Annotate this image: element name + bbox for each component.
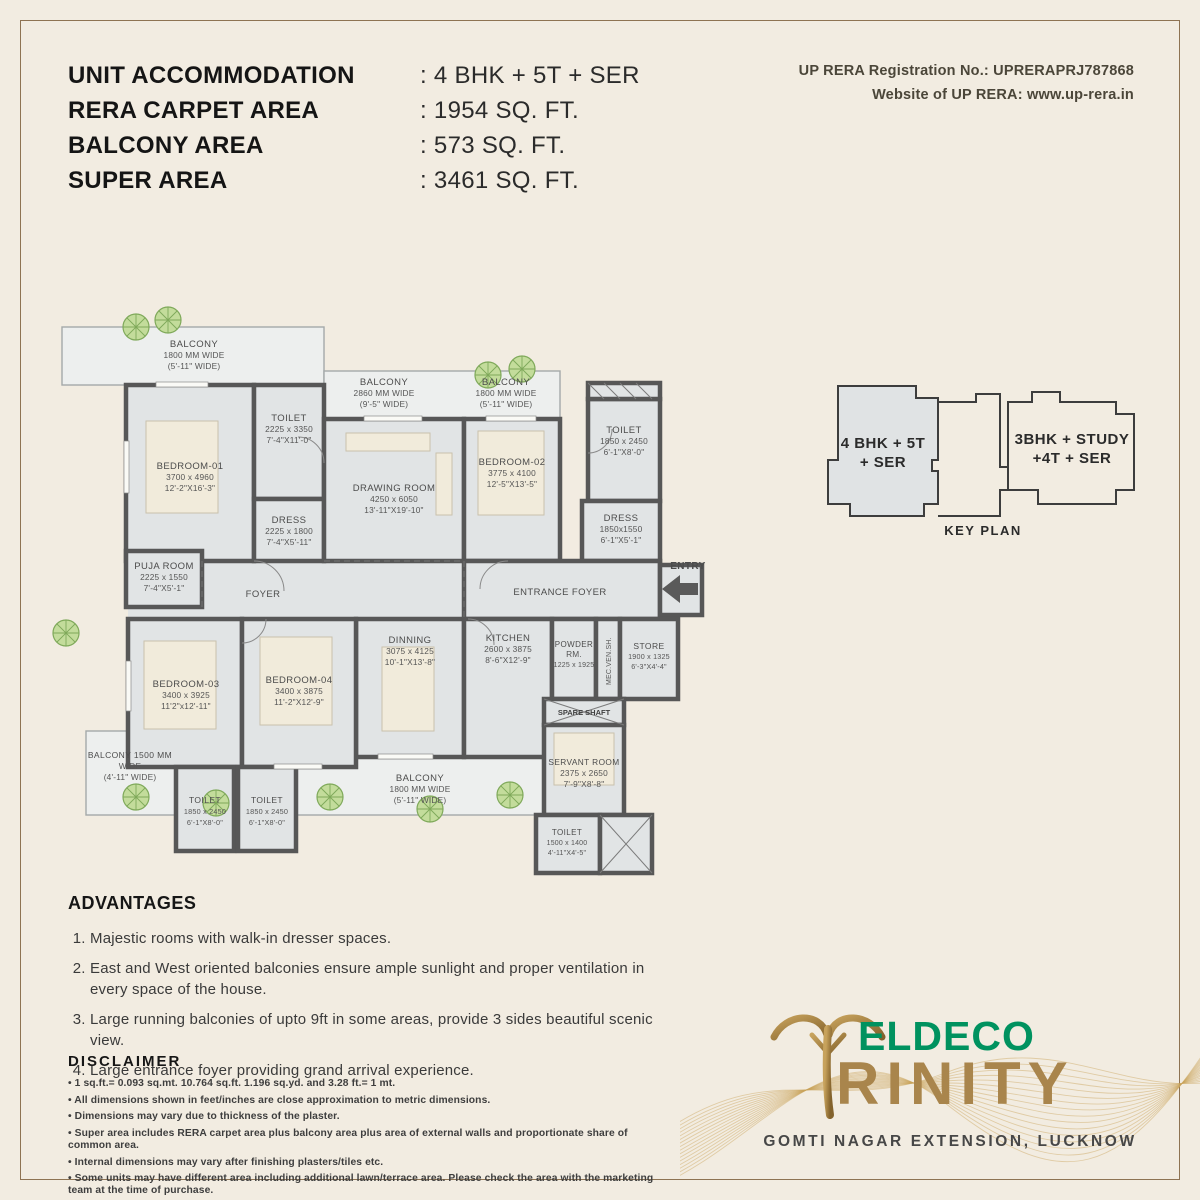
room-label: SERVANT ROOM: [548, 757, 619, 767]
tree-icon: [123, 784, 149, 810]
key-plan-caption: KEY PLAN: [944, 523, 1022, 538]
room-dim: WIDE: [119, 761, 142, 771]
room-label: PUJA ROOM: [134, 561, 194, 572]
disclaimer-item: All dimensions shown in feet/inches are …: [68, 1095, 668, 1107]
spec-value: : 573 SQ. FT.: [420, 132, 640, 160]
disclaimer-item: Dimensions may vary due to thickness of …: [68, 1111, 668, 1123]
spec-label: UNIT ACCOMMODATION: [68, 62, 420, 90]
room-label: TOILET: [251, 795, 283, 805]
room-label: DRESS: [604, 513, 639, 524]
advantage-item: East and West oriented balconies ensure …: [90, 958, 658, 1000]
room-label: KITCHEN: [486, 633, 531, 644]
room-powder: [552, 619, 596, 699]
disclaimer-item: 1 sq.ft.= 0.093 sq.mt. 10.764 sq.ft. 1.1…: [68, 1078, 668, 1090]
room-dim: 2600 x 3875: [484, 644, 532, 654]
room-dim: 2225 x 1550: [140, 572, 188, 582]
entry-label: ENTRY: [670, 561, 706, 572]
room-label: TOILET: [552, 828, 582, 837]
room-label: POWDER: [555, 640, 593, 649]
eldeco-trinity-logo: ELDECO RINITY GOMTI NAGAR EXTENSION, LUC…: [740, 995, 1180, 1175]
room-dim: 1225 x 1925: [554, 662, 595, 669]
room-dim: 3400 x 3925: [162, 690, 210, 700]
room-label: BEDROOM-02: [479, 457, 546, 468]
room-label: BALCONY: [396, 773, 444, 784]
room-label: DRAWING ROOM: [353, 483, 436, 494]
spec-value: : 4 BHK + 5T + SER: [420, 62, 640, 90]
room-label: DRESS: [272, 515, 307, 526]
room-dim: 2860 MM WIDE: [354, 388, 415, 398]
room-dim: 1500 x 1400: [547, 840, 588, 847]
room-dim: 1850 x 2450: [184, 807, 226, 816]
room-dim: 3700 x 4960: [166, 472, 214, 482]
disclaimer-item: Super area includes RERA carpet area plu…: [68, 1128, 668, 1152]
room-dim: 3775 x 4100: [488, 468, 536, 478]
room-dim: 2225 x 3350: [265, 424, 313, 434]
room-dim: (9'-5" WIDE): [360, 399, 408, 409]
room-label: BALCONY 1500 MM: [88, 750, 172, 760]
room-dim: 11'2"x12'-11": [161, 701, 211, 711]
key-plan-right-unit: [1008, 392, 1134, 504]
tree-icon: [155, 307, 181, 333]
brochure-page: UNIT ACCOMMODATION : 4 BHK + 5T + SER RE…: [0, 0, 1200, 1200]
unit-spec-table: UNIT ACCOMMODATION : 4 BHK + 5T + SER RE…: [68, 62, 640, 195]
spec-value: : 3461 SQ. FT.: [420, 167, 640, 195]
tree-icon: [53, 620, 79, 646]
room-dim: 6'-1"X8'-0": [604, 447, 645, 457]
tree-icon: [123, 314, 149, 340]
key-plan-right-label: +4T + SER: [1033, 450, 1112, 467]
floor-plan: BALCONY 1800 MM WIDE (5'-11" WIDE) BALCO…: [48, 303, 713, 888]
room-label: BALCONY: [170, 339, 218, 350]
room-dim: 6'-1"X8'-0": [249, 818, 285, 827]
room-label: SPARE SHAFT: [558, 708, 611, 717]
room-dim: RM.: [566, 649, 582, 659]
room-dim: 7'-4"X5'-1": [144, 583, 185, 593]
key-plan-core: [938, 394, 1008, 516]
spec-label: BALCONY AREA: [68, 132, 420, 160]
room-dim: (5'-11" WIDE): [394, 795, 447, 805]
room-label: FOYER: [246, 589, 281, 600]
key-plan-left-label: 4 BHK + 5T: [841, 435, 926, 452]
room-dim: 2225 x 1800: [265, 526, 313, 536]
room-dim: (4'-11" WIDE): [104, 772, 157, 782]
key-plan: 4 BHK + 5T + SER 3BHK + STUDY +4T + SER …: [820, 372, 1150, 540]
disclaimer-title: DISCLAIMER: [68, 1053, 668, 1070]
room-dim: 1800 MM WIDE: [164, 350, 225, 360]
room-dim: 10'-1"X13'-8": [385, 657, 435, 667]
room-label: BEDROOM-01: [157, 461, 224, 472]
room-label: BALCONY: [482, 377, 530, 388]
rera-info: UP RERA Registration No.: UPRERAPRJ78786…: [799, 60, 1134, 108]
disclaimer-item: Some units may have different area inclu…: [68, 1173, 668, 1197]
room-label: STORE: [633, 641, 664, 651]
room-dim: 3075 x 4125: [386, 646, 434, 656]
room-dim: 3400 x 3875: [275, 686, 323, 696]
room-dim: 7'-9"X8'-8": [564, 779, 605, 789]
room-dim: 7'-4"X11'-0": [267, 435, 312, 445]
room-dim: 12'-5"X13'-5": [487, 479, 537, 489]
disclaimer-item: Internal dimensions may vary after finis…: [68, 1157, 668, 1169]
room-label: BALCONY: [360, 377, 408, 388]
room-dim: 1900 x 1325: [628, 652, 670, 661]
room-label: DINNING: [389, 635, 432, 646]
disclaimer-section: DISCLAIMER 1 sq.ft.= 0.093 sq.mt. 10.764…: [68, 1053, 668, 1200]
room-dim: (5'-11" WIDE): [480, 399, 533, 409]
room-dim: 2375 x 2650: [560, 768, 608, 778]
room-dim: 1850x1550: [600, 524, 643, 534]
room-dim: 11'-2"X12'-9": [274, 697, 324, 707]
room-dim: (5'-11" WIDE): [168, 361, 221, 371]
room-label: TOILET: [271, 413, 306, 424]
room-dim: 7'-4"X5'-11": [267, 537, 312, 547]
room-dim: 12'-2"X16'-3": [165, 483, 215, 493]
room-dim: 6'-3"X4'-4": [631, 662, 667, 671]
room-dim: 4250 x 6050: [370, 494, 418, 504]
room-label: BEDROOM-04: [266, 675, 333, 686]
key-plan-left-label: + SER: [860, 454, 906, 471]
room-dim: 1850 x 2450: [246, 807, 288, 816]
advantage-item: Large running balconies of upto 9ft in s…: [90, 1009, 658, 1051]
rera-website: Website of UP RERA: www.up-rera.in: [799, 84, 1134, 108]
advantage-item: Majestic rooms with walk-in dresser spac…: [90, 928, 658, 949]
room-dim: 1850 x 2450: [600, 436, 648, 446]
room-dim: 8'-6"X12'-9": [485, 655, 531, 665]
room-label: MEC.VEN.SH.: [606, 637, 613, 685]
room-dim: 6'-1"X5'-1": [601, 535, 642, 545]
tree-icon: [497, 782, 523, 808]
spec-label: RERA CARPET AREA: [68, 97, 420, 125]
room-dim: 1800 MM WIDE: [390, 784, 451, 794]
tree-icon: [317, 784, 343, 810]
rera-registration: UP RERA Registration No.: UPRERAPRJ78786…: [799, 60, 1134, 84]
spec-value: : 1954 SQ. FT.: [420, 97, 640, 125]
room-dim: 13'-11"X19'-10": [364, 505, 423, 515]
project-wordmark: RINITY: [836, 1049, 1075, 1118]
room-dim: 4'-11"X4'-5": [548, 850, 587, 857]
room-label: TOILET: [606, 425, 641, 436]
room-label: BEDROOM-03: [153, 679, 220, 690]
spec-label: SUPER AREA: [68, 167, 420, 195]
room-label: TOILET: [189, 795, 221, 805]
room-dim: 6'-1"X8'-0": [187, 818, 223, 827]
advantages-title: ADVANTAGES: [68, 893, 658, 914]
room-label: ENTRANCE FOYER: [513, 587, 606, 598]
key-plan-right-label: 3BHK + STUDY: [1015, 431, 1130, 448]
room-dim: 1800 MM WIDE: [476, 388, 537, 398]
location-text: GOMTI NAGAR EXTENSION, LUCKNOW: [740, 1133, 1160, 1151]
